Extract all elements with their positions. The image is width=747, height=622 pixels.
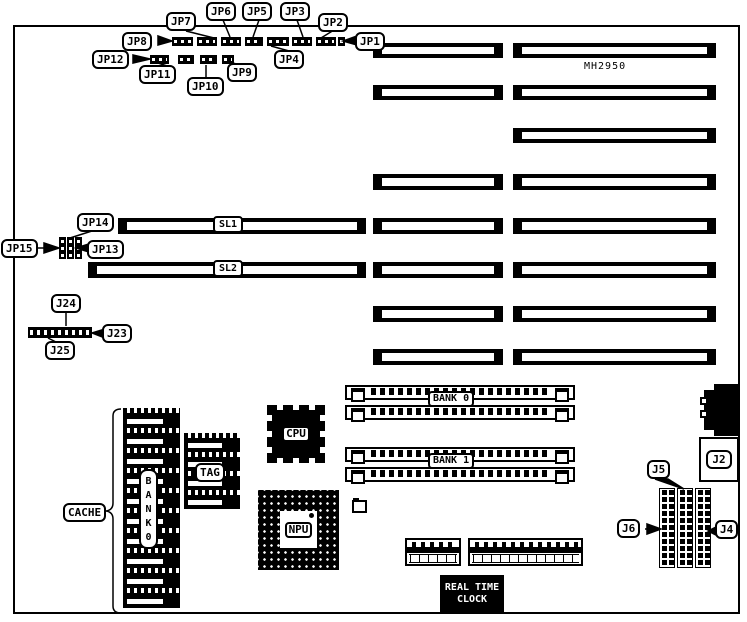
cache-chip: [123, 568, 180, 588]
label-tag: TAG: [195, 463, 225, 482]
label-jp4: JP4: [274, 50, 304, 69]
label-cpu: CPU: [282, 426, 310, 442]
pin1-dot: [309, 513, 314, 518]
real-time-clock: REAL TIME CLOCK: [440, 575, 504, 613]
cache-chip: [123, 448, 180, 468]
jumper-block: [267, 37, 289, 46]
slot-sl2: SL2: [88, 262, 366, 278]
expansion-slot: [513, 218, 716, 234]
jumper-block-vertical: [75, 237, 82, 259]
jumper-block: [245, 37, 263, 46]
npu-socket: NPU: [258, 490, 339, 570]
jumper-block: [338, 37, 345, 46]
label-bank0: BANK 0: [428, 391, 474, 407]
cache-chip: [123, 428, 180, 448]
label-j2: J2: [706, 450, 731, 469]
label-j5: J5: [647, 460, 670, 479]
label-jp8: JP8: [122, 32, 152, 51]
slot-sl1: SL1: [118, 218, 366, 234]
jumper-block: [221, 37, 241, 46]
connector-notch: [700, 410, 708, 418]
expansion-slot: [513, 85, 716, 100]
label-jp12: JP12: [92, 50, 129, 69]
rtc-text-line1: REAL TIME: [445, 582, 499, 594]
label-j24: J24: [51, 294, 81, 313]
board-model-text: MH2950: [584, 61, 626, 72]
expansion-slot: [373, 43, 503, 58]
jumper-block-vertical: [59, 237, 66, 259]
small-component: [352, 500, 367, 513]
simm-socket-bank1-row2: [345, 467, 575, 482]
pin-header-j5: [677, 488, 693, 568]
expansion-slot: [513, 128, 716, 143]
label-jp14: JP14: [77, 213, 114, 232]
label-jp5: JP5: [242, 2, 272, 21]
expansion-slot: [373, 306, 503, 322]
cpu-chip: CPU: [267, 405, 325, 463]
j2-connector: J2: [699, 437, 739, 482]
label-jp2: JP2: [318, 13, 348, 32]
jumper-strip-j23: [28, 327, 92, 338]
slot-sl2-label: SL2: [213, 260, 243, 277]
expansion-slot: [513, 262, 716, 278]
label-j6: J6: [617, 519, 640, 538]
label-cache: CACHE: [63, 503, 106, 522]
connector-notch: [700, 397, 708, 405]
jumper-block-vertical: [67, 237, 74, 259]
jumper-block: [200, 55, 217, 64]
keyboard-connector-step: [714, 429, 740, 436]
expansion-slot: [373, 218, 503, 234]
label-jp9: JP9: [227, 63, 257, 82]
jumper-block: [197, 37, 217, 46]
cache-chip: [123, 408, 180, 428]
motherboard-diagram: SL1 SL2 MH2950 JP7 JP6 JP5 JP3 JP2 JP8 J…: [0, 0, 747, 622]
keyboard-connector-step: [714, 384, 740, 391]
label-jp15: JP15: [1, 239, 38, 258]
label-bank1: BANK 1: [428, 453, 474, 469]
expansion-slot: [373, 262, 503, 278]
expansion-slot: [373, 349, 503, 365]
label-jp13: JP13: [87, 240, 124, 259]
tag-chip: [184, 433, 240, 452]
label-jp10: JP10: [187, 77, 224, 96]
label-jp1: JP1: [355, 32, 385, 51]
jumper-block: [292, 37, 312, 46]
slot-sl1-label: SL1: [213, 216, 243, 233]
cache-chip: [123, 548, 180, 568]
label-jp3: JP3: [280, 2, 310, 21]
expansion-slot: [513, 43, 716, 58]
power-connector-small: [405, 538, 461, 566]
jumper-block: [178, 55, 194, 64]
label-npu: NPU: [285, 522, 313, 538]
cache-chip: [123, 588, 180, 608]
expansion-slot: [513, 306, 716, 322]
label-jp7: JP7: [166, 12, 196, 31]
power-connector-large: [468, 538, 583, 566]
label-j23: J23: [102, 324, 132, 343]
label-j25: J25: [45, 341, 75, 360]
pin-header-j4: [695, 488, 711, 568]
expansion-slot: [373, 174, 503, 190]
jumper-block: [172, 37, 193, 46]
jumper-block: [316, 37, 336, 46]
expansion-slot: [513, 349, 716, 365]
label-jp11: JP11: [139, 65, 176, 84]
simm-socket-bank0-row2: [345, 405, 575, 420]
npu-core: NPU: [280, 511, 317, 548]
tag-chip: [184, 490, 240, 509]
label-jp6: JP6: [206, 2, 236, 21]
keyboard-connector: [704, 390, 740, 430]
pin-header-j6: [659, 488, 675, 568]
jumper-block: [150, 55, 169, 64]
expansion-slot: [513, 174, 716, 190]
label-j4: J4: [715, 520, 738, 539]
label-cache-bank0: BANK0: [139, 469, 158, 549]
rtc-text-line2: CLOCK: [457, 594, 487, 606]
expansion-slot: [373, 85, 503, 100]
